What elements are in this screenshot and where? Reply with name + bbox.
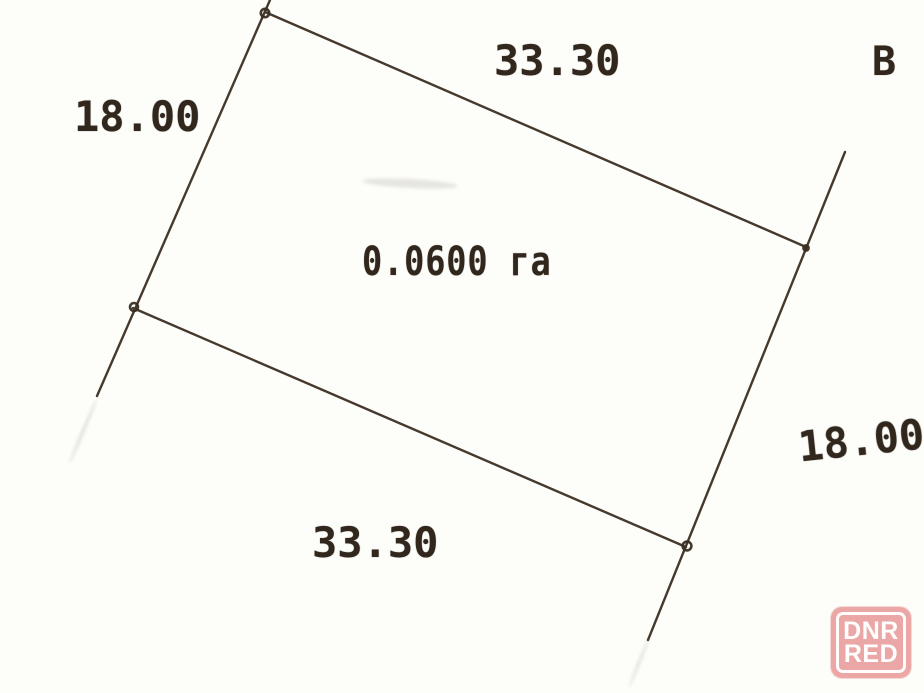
plot-area-label: 0.0600 га xyxy=(362,242,552,282)
corner-marker-west xyxy=(130,303,138,311)
dimension-label-top: 33.30 xyxy=(494,40,620,82)
boundary-line-bottom xyxy=(133,308,686,547)
watermark-frame: DNR RED xyxy=(836,612,906,673)
direction-letter: В xyxy=(872,42,896,82)
dimension-label-bottom: 33.30 xyxy=(312,522,438,564)
land-plot-plan: 33.30 18.00 В 0.0600 га 18.00 33.30 DNR … xyxy=(0,0,924,693)
dimension-label-left: 18.00 xyxy=(74,96,200,138)
boundary-line-left xyxy=(97,0,270,396)
dimension-label-right: 18.00 xyxy=(796,414,924,469)
watermark-text-line2: RED xyxy=(844,643,898,666)
boundary-line-right xyxy=(648,152,845,640)
corner-marker-east xyxy=(803,245,808,250)
watermark-badge: DNR RED xyxy=(831,607,911,678)
